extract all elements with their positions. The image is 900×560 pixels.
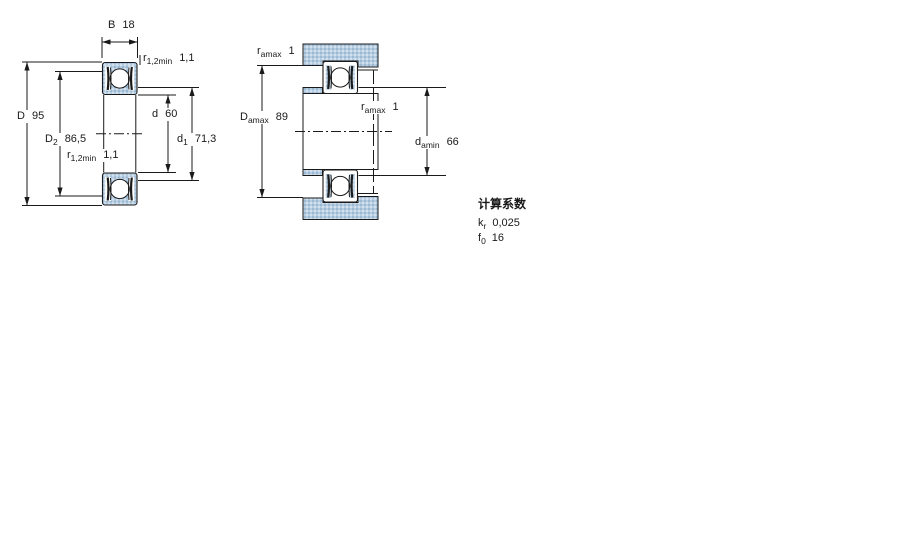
- dim-label-d: d60: [150, 108, 179, 121]
- dim-label-da: damin66: [413, 136, 461, 149]
- dim-d: [138, 95, 176, 173]
- factor-kr: kr0,025: [478, 217, 520, 231]
- shaft-shoulder-bottom: [303, 170, 323, 176]
- dim-label-D2: D286,5: [43, 133, 88, 146]
- bearing-drawing: [0, 0, 900, 560]
- dim-label-D: D95: [15, 110, 46, 123]
- dim-label-r-bottom: r1,2min1,1: [65, 149, 120, 162]
- bearing-section-bottom: [103, 173, 138, 205]
- dim-label-ra-top: ramax1: [257, 45, 295, 58]
- dim-label-B: B18: [108, 19, 135, 32]
- factor-f0: f016: [478, 232, 504, 246]
- dim-label-r-top: r1,2min1,1: [143, 52, 194, 65]
- bearing-outline-bottom: [323, 170, 358, 202]
- dim-label-Da: Damax89: [238, 111, 290, 124]
- dim-label-ra-mid: ramax1: [359, 101, 401, 114]
- shaft-shoulder-top: [303, 88, 323, 94]
- dim-B: [102, 37, 138, 58]
- bearing-section-top: [103, 63, 138, 95]
- technical-drawing-page: B18 D95 D286,5 r1,2min1,1 d60 d171,3 r1,…: [0, 0, 900, 560]
- factors-title: 计算系数: [478, 195, 526, 212]
- dim-label-d1: d171,3: [175, 133, 218, 146]
- bearing-outline-top: [323, 62, 358, 94]
